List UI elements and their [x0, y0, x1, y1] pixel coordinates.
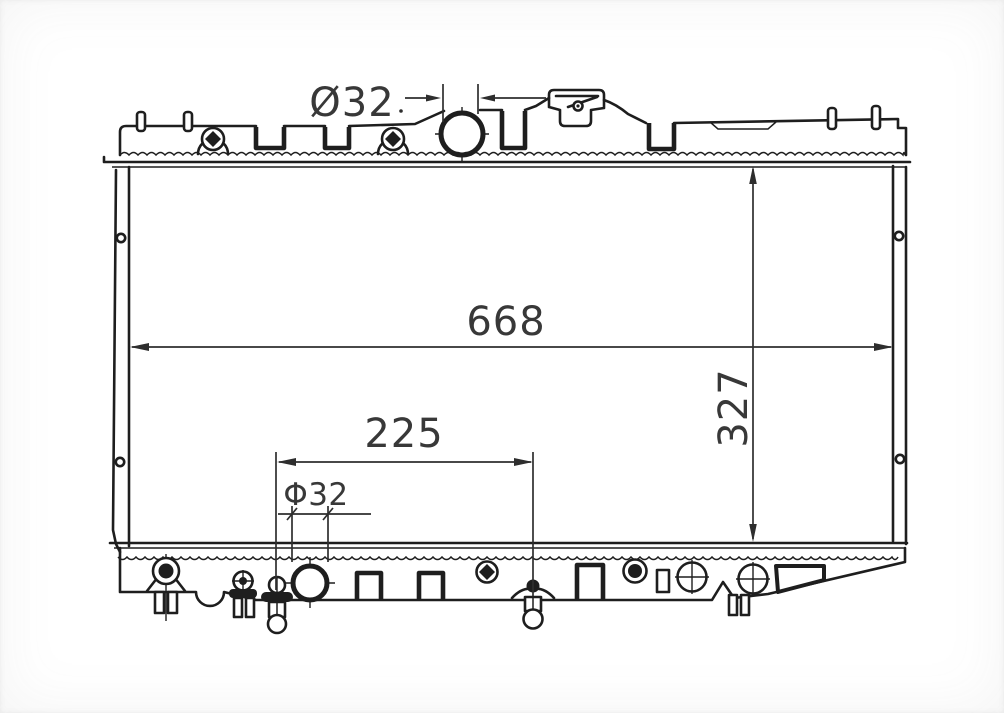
- filler-neck-ring: [441, 113, 483, 155]
- arrowhead: [749, 524, 757, 542]
- bottom-crimp-line: [118, 557, 898, 560]
- dim-label-bottom-port-diameter: Φ32: [283, 477, 348, 513]
- arrowhead: [749, 166, 757, 184]
- arrowhead: [514, 458, 533, 466]
- top-header-plate: [104, 157, 910, 162]
- mounting-tab: [137, 112, 145, 131]
- fork-leg: [729, 595, 737, 615]
- bracket-notch: [649, 123, 674, 149]
- bracket-hole: [896, 455, 904, 463]
- clip: [657, 570, 669, 592]
- bolt-boss: [378, 128, 408, 154]
- bracket-notch: [256, 127, 284, 148]
- dimension-bottom-port-diameter: Φ32: [278, 477, 371, 562]
- dim-label-bottom-port-offset: 225: [364, 411, 443, 457]
- side-bracket-left: [113, 167, 129, 552]
- fork-leg: [741, 595, 749, 615]
- bracket-hole: [116, 458, 124, 466]
- bracket-notch: [577, 565, 603, 600]
- radiator-cap: [549, 90, 604, 126]
- bottom-tank: [110, 543, 907, 633]
- bolt-boss: [624, 560, 647, 583]
- left-mount: [147, 554, 185, 621]
- dimension-core-height: 327: [711, 166, 757, 542]
- arrowhead: [277, 458, 296, 466]
- crosshair-boss: [675, 560, 709, 594]
- mounting-tab: [828, 108, 836, 129]
- stud-mount: [229, 570, 257, 617]
- top-crimp-line: [120, 152, 905, 155]
- drawing-canvas: Ø32 668 327 225 Φ32: [0, 0, 1004, 713]
- arrowhead: [426, 95, 441, 102]
- arrowhead: [480, 95, 495, 102]
- dimension-core-width: 668: [130, 299, 893, 351]
- outlet-pipe-ring: [293, 566, 327, 600]
- bracket-hole: [895, 232, 903, 240]
- dim-label-core-width: 668: [466, 299, 545, 345]
- dim-label-core-height: 327: [711, 368, 757, 447]
- bolt-boss: [198, 128, 228, 154]
- bracket-notch: [325, 127, 349, 148]
- drain-plug: [261, 576, 293, 633]
- mounting-tab: [184, 112, 192, 131]
- crosshair-boss: [736, 562, 770, 596]
- bracket-notch: [419, 573, 443, 600]
- bolt-boss: [477, 562, 498, 583]
- slant-plate: [776, 566, 824, 592]
- right-mount-cluster: [657, 560, 824, 615]
- dim-label-top-port-diameter: Ø32: [309, 80, 394, 126]
- bracket-hole: [117, 234, 125, 242]
- mounting-tab: [872, 106, 880, 129]
- arrowhead: [130, 343, 149, 351]
- bracket-notch: [502, 111, 525, 148]
- side-bracket-right: [893, 166, 906, 544]
- radiator-engineering-drawing: Ø32 668 327 225 Φ32: [0, 0, 1004, 713]
- bracket-notch: [357, 573, 381, 600]
- arrowhead: [874, 343, 893, 351]
- top-tank: [104, 90, 910, 167]
